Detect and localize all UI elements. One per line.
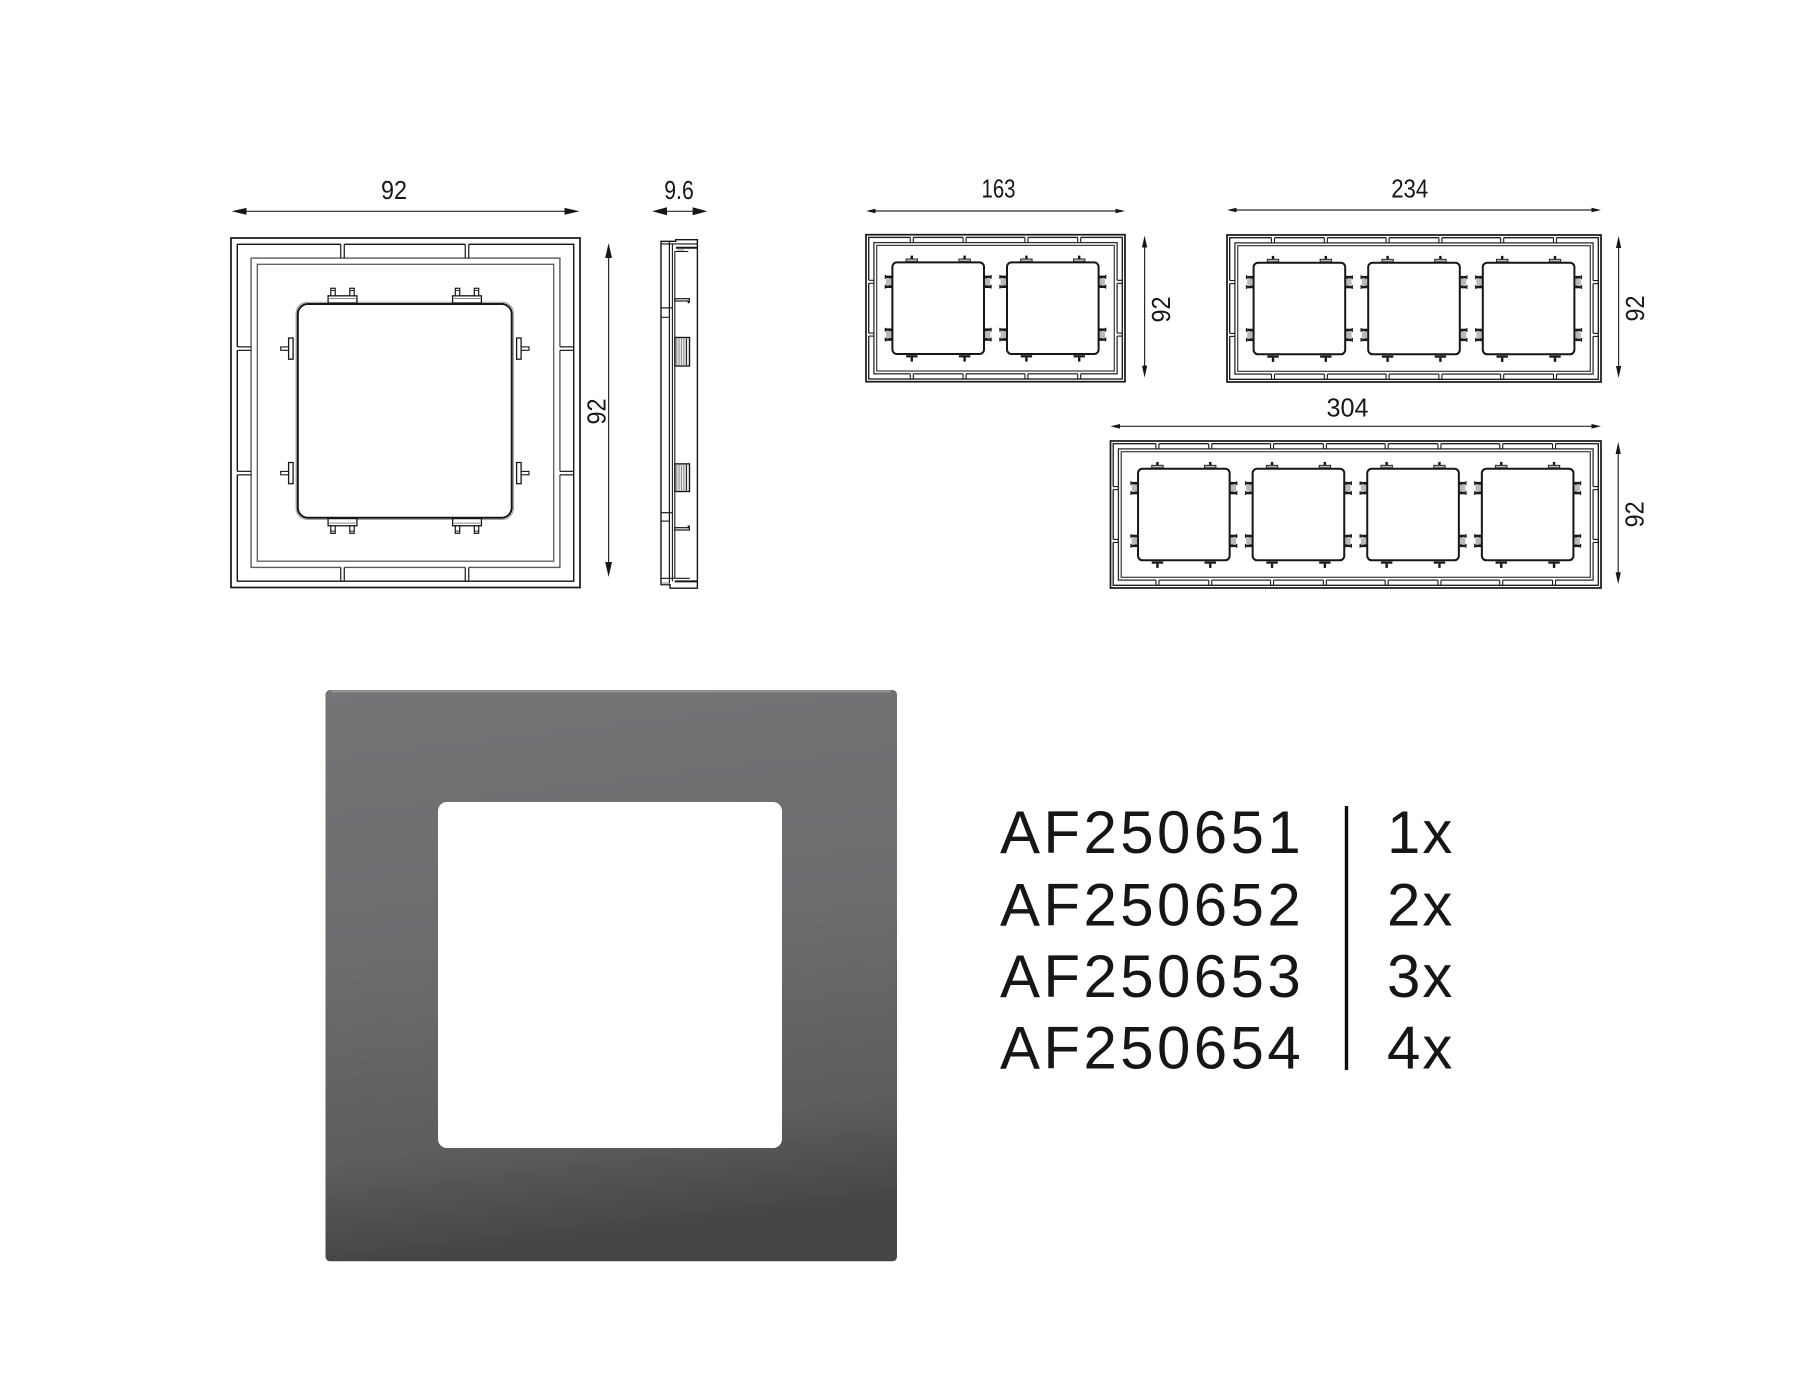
svg-text:304: 304 xyxy=(1327,395,1369,423)
svg-text:AF250654: AF250654 xyxy=(1000,1015,1304,1082)
svg-text:4x: 4x xyxy=(1387,1015,1454,1082)
svg-text:234: 234 xyxy=(1391,176,1428,204)
svg-text:9.6: 9.6 xyxy=(664,177,694,205)
svg-text:92: 92 xyxy=(381,177,407,205)
svg-text:92: 92 xyxy=(1148,297,1176,323)
svg-text:92: 92 xyxy=(1622,501,1650,527)
svg-text:2x: 2x xyxy=(1387,872,1454,939)
svg-text:92: 92 xyxy=(1622,296,1650,322)
svg-text:AF250651: AF250651 xyxy=(1000,799,1304,866)
svg-text:163: 163 xyxy=(982,176,1016,204)
svg-text:AF250653: AF250653 xyxy=(1000,943,1304,1010)
svg-text:AF250652: AF250652 xyxy=(1000,872,1304,939)
svg-text:1x: 1x xyxy=(1387,799,1454,866)
svg-text:3x: 3x xyxy=(1387,943,1454,1010)
svg-text:92: 92 xyxy=(583,399,611,425)
